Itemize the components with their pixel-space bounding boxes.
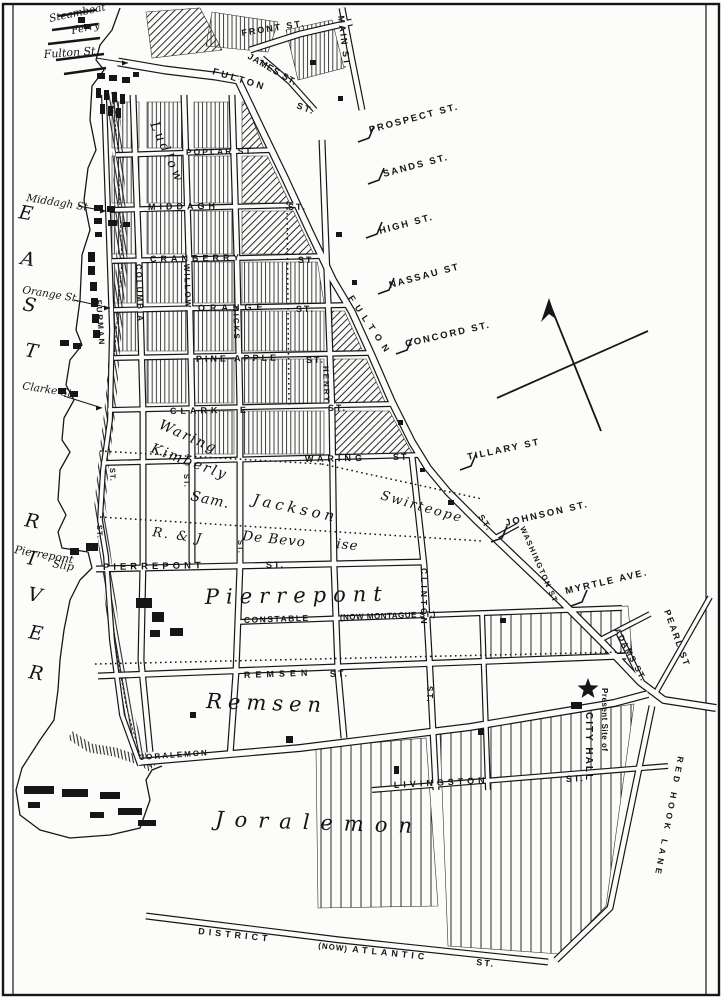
map-label: WARING: [305, 453, 366, 464]
map-label: ST.: [330, 668, 349, 679]
building: [170, 628, 183, 636]
building: [94, 218, 102, 224]
map-label: ST.: [266, 560, 285, 570]
map-label: ST.: [288, 202, 307, 212]
city-block: [242, 411, 324, 454]
map-label: CRANBERRY: [150, 252, 243, 264]
building: [571, 702, 582, 709]
map-label: ST.: [95, 525, 104, 539]
building: [394, 766, 399, 774]
city-block: [194, 359, 234, 403]
city-block: [194, 156, 234, 203]
building: [190, 712, 196, 718]
map-label: ST: [298, 255, 314, 265]
map-label: E: [240, 405, 246, 415]
building: [500, 618, 506, 623]
map-label: ST.: [296, 304, 315, 314]
map-label: POPLAR ST.: [186, 146, 256, 157]
map-label: CLINTON: [419, 568, 429, 627]
map-label: PINE APPLE: [196, 353, 279, 364]
building: [96, 88, 101, 98]
building: [95, 232, 102, 237]
city-block: [242, 359, 324, 403]
map-label: Present Site of: [600, 688, 609, 752]
building: [107, 206, 115, 212]
map-label: HENRY: [321, 366, 331, 404]
building: [152, 612, 164, 622]
map-label: HICKS: [231, 306, 241, 341]
map-label: ST.: [425, 686, 434, 704]
building: [150, 630, 160, 637]
building: [86, 543, 98, 551]
building: [120, 94, 125, 104]
building: [420, 468, 425, 472]
building: [398, 420, 403, 425]
map-label: WILLOW: [182, 264, 193, 310]
building: [136, 598, 152, 608]
map-label: ST.: [566, 773, 586, 784]
map-label: CLARK: [170, 405, 222, 416]
map-label: ST.: [236, 540, 245, 554]
building: [90, 282, 97, 291]
building: [116, 108, 121, 118]
building: [88, 266, 95, 275]
city-block: [242, 311, 324, 351]
map-label: ST.: [476, 957, 496, 969]
building: [24, 786, 54, 794]
building: [122, 77, 130, 83]
building: [352, 280, 357, 285]
city-block: [147, 359, 186, 403]
map-label: CITY HALL: [583, 712, 594, 782]
building: [60, 340, 69, 346]
city-block: [147, 311, 186, 351]
map-figure: SteamboatFerryFulton St.Middagh StOrange…: [0, 0, 724, 1000]
city-block: [112, 311, 139, 351]
map-label: MIDDAGH: [148, 201, 219, 212]
map-label: ST.: [182, 474, 191, 488]
building: [28, 802, 40, 808]
building: [112, 92, 117, 102]
city-block: [194, 102, 234, 148]
building: [109, 75, 117, 81]
building: [123, 222, 130, 227]
building: [310, 60, 316, 65]
map-label: ise: [336, 536, 360, 554]
city-block: [147, 211, 186, 254]
building: [336, 232, 342, 237]
building: [138, 820, 156, 826]
map-label: Remsen: [205, 689, 328, 717]
map-label: Pierrepont: [204, 582, 389, 609]
building: [73, 343, 81, 349]
building: [338, 96, 343, 101]
map-label: ST: [393, 452, 409, 462]
building: [97, 73, 105, 79]
building: [88, 252, 95, 262]
brooklyn-heights-map: SteamboatFerryFulton St.Middagh StOrange…: [0, 0, 724, 1000]
building: [62, 789, 88, 797]
map-label: PIERREPONT: [103, 560, 205, 573]
building: [478, 729, 484, 735]
building: [133, 72, 139, 77]
building: [108, 106, 113, 116]
city-block: [242, 262, 324, 303]
city-block: [194, 211, 234, 254]
city-block: [194, 311, 234, 351]
map-label: ST.: [306, 355, 325, 365]
building: [118, 808, 142, 815]
map-label: ST.: [328, 403, 347, 413]
building: [108, 220, 117, 226]
building: [100, 792, 120, 799]
building: [286, 736, 293, 743]
building: [90, 812, 104, 818]
building: [100, 104, 105, 114]
city-block: [194, 262, 234, 303]
building: [104, 90, 109, 100]
city-block: [147, 262, 186, 303]
map-label: ST.: [108, 468, 117, 482]
building: [448, 500, 454, 505]
